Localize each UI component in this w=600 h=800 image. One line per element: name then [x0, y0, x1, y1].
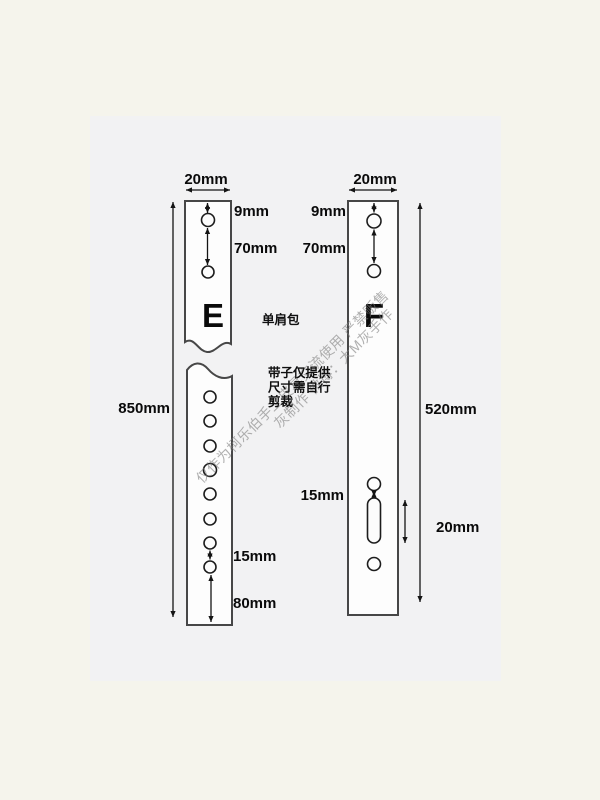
- strap-dimension-diagram: 20mm 9mm 70mm 850mm 15mm 80mm E 20mm 9mm…: [0, 0, 600, 800]
- punch-hole: [204, 391, 216, 403]
- dim-label-f-width: 20mm: [353, 171, 396, 188]
- dim-label-e-width: 20mm: [184, 171, 227, 188]
- strap-f-body: [348, 201, 398, 615]
- dim-label-f-9mm: 9mm: [311, 203, 346, 220]
- punch-hole: [367, 214, 381, 228]
- punch-hole: [204, 537, 216, 549]
- dim-label-e-80mm: 80mm: [233, 595, 276, 612]
- dim-label-e-9mm: 9mm: [234, 203, 269, 220]
- cut-note-line: 剪裁: [268, 394, 294, 409]
- dim-label-f-20mm: 20mm: [436, 519, 479, 536]
- strap-f-slot: [368, 498, 381, 543]
- dim-label-e-15mm: 15mm: [233, 548, 276, 565]
- dim-label-e-70mm: 70mm: [234, 240, 277, 257]
- punch-hole: [204, 513, 216, 525]
- punch-hole: [204, 561, 216, 573]
- punch-hole: [204, 488, 216, 500]
- punch-hole: [202, 266, 214, 278]
- punch-hole: [368, 558, 381, 571]
- punch-hole: [202, 214, 215, 227]
- punch-hole: [204, 415, 216, 427]
- punch-hole: [368, 478, 381, 491]
- cut-note-line: 带子仅提供: [268, 365, 331, 380]
- dim-label-f-520mm: 520mm: [425, 401, 477, 418]
- product-diagram-image: 20mm 9mm 70mm 850mm 15mm 80mm E 20mm 9mm…: [0, 0, 600, 800]
- dim-label-f-15mm: 15mm: [301, 487, 344, 504]
- strap-e-letter: E: [202, 297, 224, 334]
- category-label: 单肩包: [262, 312, 300, 327]
- cut-note-line: 尺寸需自行: [268, 380, 331, 395]
- punch-hole: [204, 440, 216, 452]
- dim-label-e-850mm: 850mm: [118, 400, 170, 417]
- punch-hole: [368, 265, 381, 278]
- dim-label-f-70mm: 70mm: [303, 240, 346, 257]
